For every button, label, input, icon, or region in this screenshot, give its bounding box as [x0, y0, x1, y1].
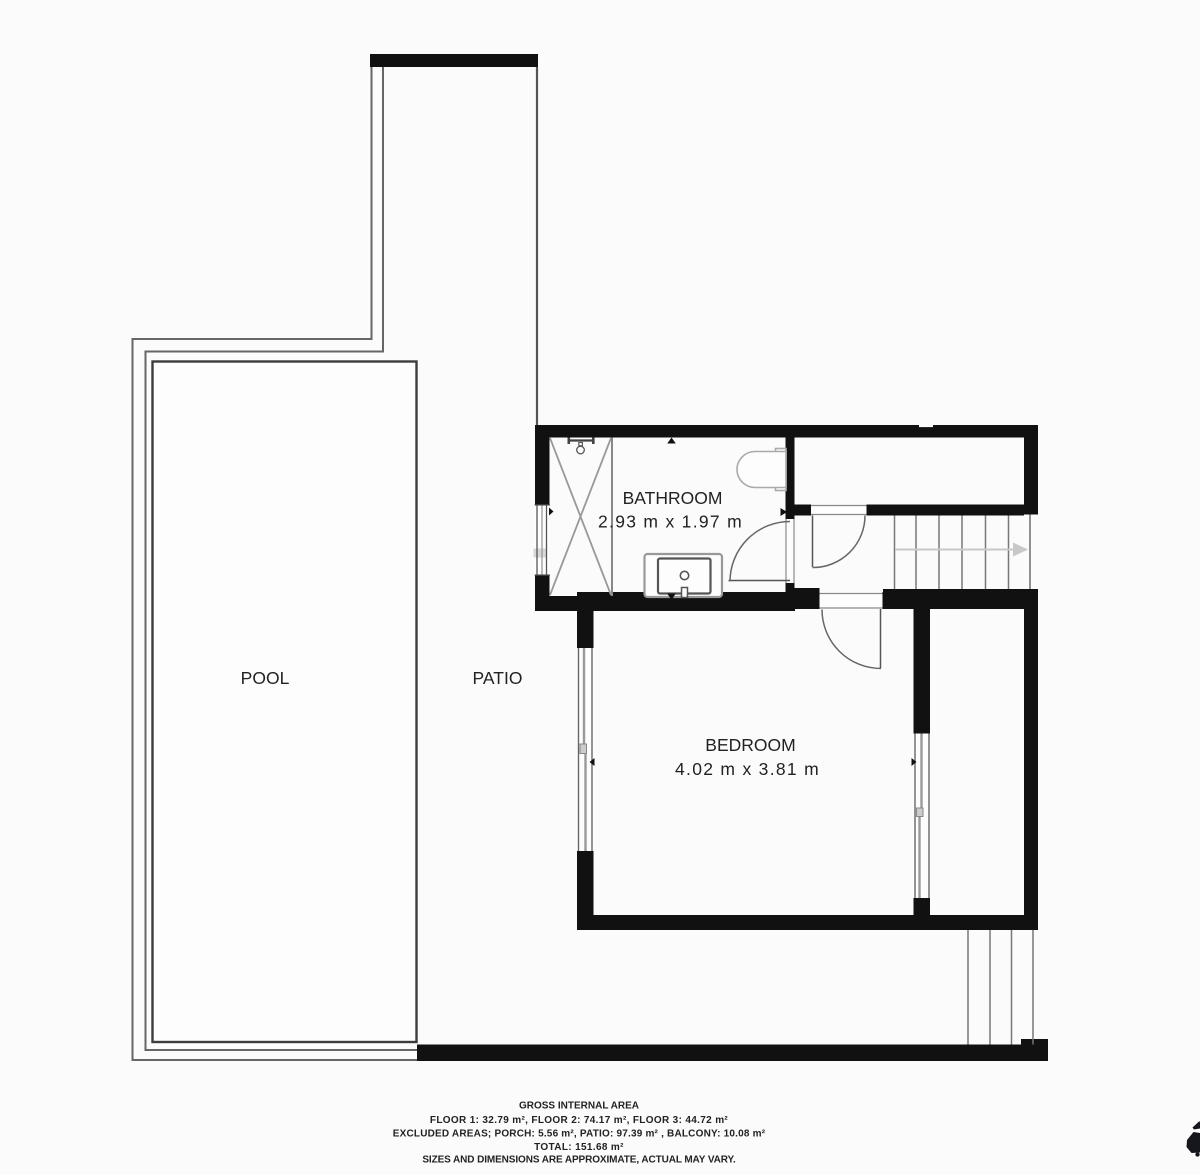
svg-text:POOL: POOL	[241, 668, 290, 688]
svg-text:SIZES AND DIMENSIONS ARE APPRO: SIZES AND DIMENSIONS ARE APPROXIMATE, AC…	[422, 1155, 736, 1166]
svg-text:FLOOR 1: 32.79 m², FLOOR 2: 74: FLOOR 1: 32.79 m², FLOOR 2: 74.17 m², FL…	[430, 1115, 729, 1126]
svg-text:4.02 m x 3.81 m: 4.02 m x 3.81 m	[675, 759, 820, 779]
svg-text:GROSS INTERNAL AREA: GROSS INTERNAL AREA	[519, 1101, 639, 1112]
svg-text:2.93 m x 1.97 m: 2.93 m x 1.97 m	[598, 512, 743, 532]
svg-text:PATIO: PATIO	[473, 668, 523, 688]
svg-text:BEDROOM: BEDROOM	[705, 735, 795, 755]
svg-text:TOTAL: 151.68 m²: TOTAL: 151.68 m²	[534, 1142, 624, 1153]
svg-text:BATHROOM: BATHROOM	[623, 488, 723, 508]
svg-text:EXCLUDED AREAS; PORCH: 5.56 m²: EXCLUDED AREAS; PORCH: 5.56 m², PATIO: 9…	[393, 1129, 766, 1140]
